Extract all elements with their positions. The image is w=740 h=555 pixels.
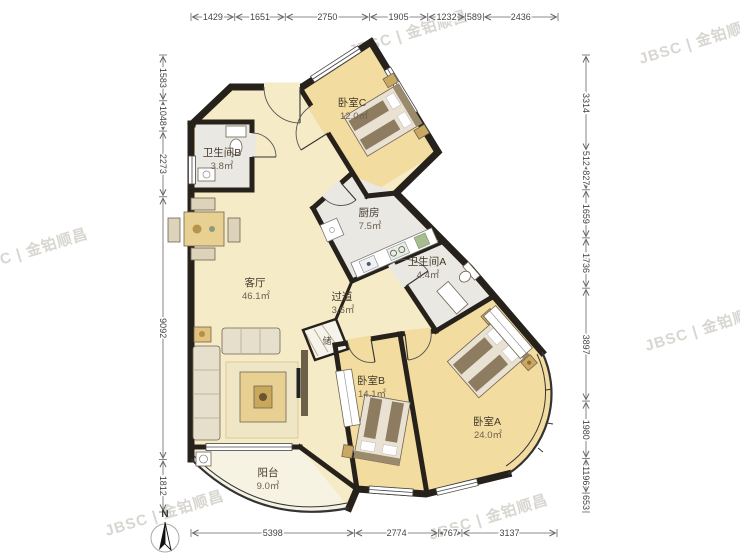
svg-text:3.8㎡: 3.8㎡ <box>211 161 234 172</box>
dimension-value: 9092 <box>158 318 168 338</box>
svg-text:阳台: 阳台 <box>258 466 279 479</box>
dimension-value: 1232 <box>437 12 457 22</box>
svg-text:24.0㎡: 24.0㎡ <box>474 430 502 441</box>
floorplan-svg: JBSC | 金铂顺昌 JBSC | 金铂顺昌 JBSC | 金铂顺昌 JBSC… <box>0 0 740 555</box>
floorplan-page: JBSC | 金铂顺昌 JBSC | 金铂顺昌 JBSC | 金铂顺昌 JBSC… <box>0 0 740 555</box>
dimension-value: 1048 <box>158 106 168 126</box>
dimension-value: 512 <box>581 151 591 166</box>
dimension-value: 767 <box>443 528 458 538</box>
svg-text:卧室B: 卧室B <box>357 374 385 387</box>
dimension-value: 2750 <box>317 12 337 22</box>
dimension-value: 3314 <box>581 93 591 113</box>
dimension-value: 1905 <box>389 12 409 22</box>
window <box>206 444 292 451</box>
compass-label: N <box>161 509 168 520</box>
compass-needle <box>159 522 165 550</box>
svg-text:12.0㎡: 12.0㎡ <box>340 111 368 122</box>
tv-screen <box>297 368 301 398</box>
dimension-value: 3897 <box>581 335 591 355</box>
floor-plan: 卧室C 12.0㎡ 卫生间B 3.8㎡ 厨房 7.5㎡ 卫生间A 4.4㎡ 客厅… <box>168 42 553 512</box>
dimension-value: 2273 <box>158 154 168 174</box>
compass-needle <box>165 522 171 550</box>
watermark-text: JBSC | 金铂顺昌 <box>637 15 740 68</box>
dimension-value: 1196 <box>581 466 591 485</box>
window <box>189 156 196 184</box>
svg-text:厨房: 厨房 <box>359 206 380 219</box>
svg-text:3.6㎡: 3.6㎡ <box>332 305 355 316</box>
svg-text:储: 储 <box>322 335 331 346</box>
dimension-value: 827 <box>581 170 591 185</box>
svg-text:卫生间B: 卫生间B <box>203 146 242 159</box>
balcony-washer <box>196 452 211 466</box>
dimension-value: 2436 <box>511 12 531 22</box>
watermark-text: JBSC | 金铂顺昌 <box>0 225 90 278</box>
dimension-value: 1659 <box>581 204 591 224</box>
svg-text:7.5㎡: 7.5㎡ <box>359 221 382 232</box>
dimension-value: 2774 <box>387 528 407 538</box>
svg-text:卫生间A: 卫生间A <box>408 255 447 268</box>
room-label-storage: 储 <box>322 335 331 346</box>
dimension-value: 1429 <box>203 12 223 22</box>
svg-text:卧室A: 卧室A <box>473 415 501 428</box>
tv-stand <box>301 350 308 416</box>
svg-text:4.4㎡: 4.4㎡ <box>417 270 440 281</box>
svg-text:卧室C: 卧室C <box>338 96 367 109</box>
dimension-value: 5398 <box>263 528 283 538</box>
watermark-text: JBSC | 金铂顺昌 <box>643 302 740 355</box>
dimension-value: 589 <box>467 12 482 22</box>
dimension-value: 1736 <box>581 253 591 273</box>
svg-text:过道: 过道 <box>332 290 353 303</box>
dimension-value: 653 <box>581 495 591 510</box>
dimension-value: 1812 <box>158 476 168 496</box>
dimension-value: 3137 <box>499 528 519 538</box>
svg-text:46.1㎡: 46.1㎡ <box>242 291 270 302</box>
svg-text:客厅: 客厅 <box>245 276 266 289</box>
svg-text:9.0㎡: 9.0㎡ <box>257 481 280 492</box>
svg-text:14.1㎡: 14.1㎡ <box>358 389 386 400</box>
dimension-value: 1583 <box>158 68 168 88</box>
dimension-value: 1980 <box>581 420 591 440</box>
dimension-value: 1651 <box>250 12 270 22</box>
